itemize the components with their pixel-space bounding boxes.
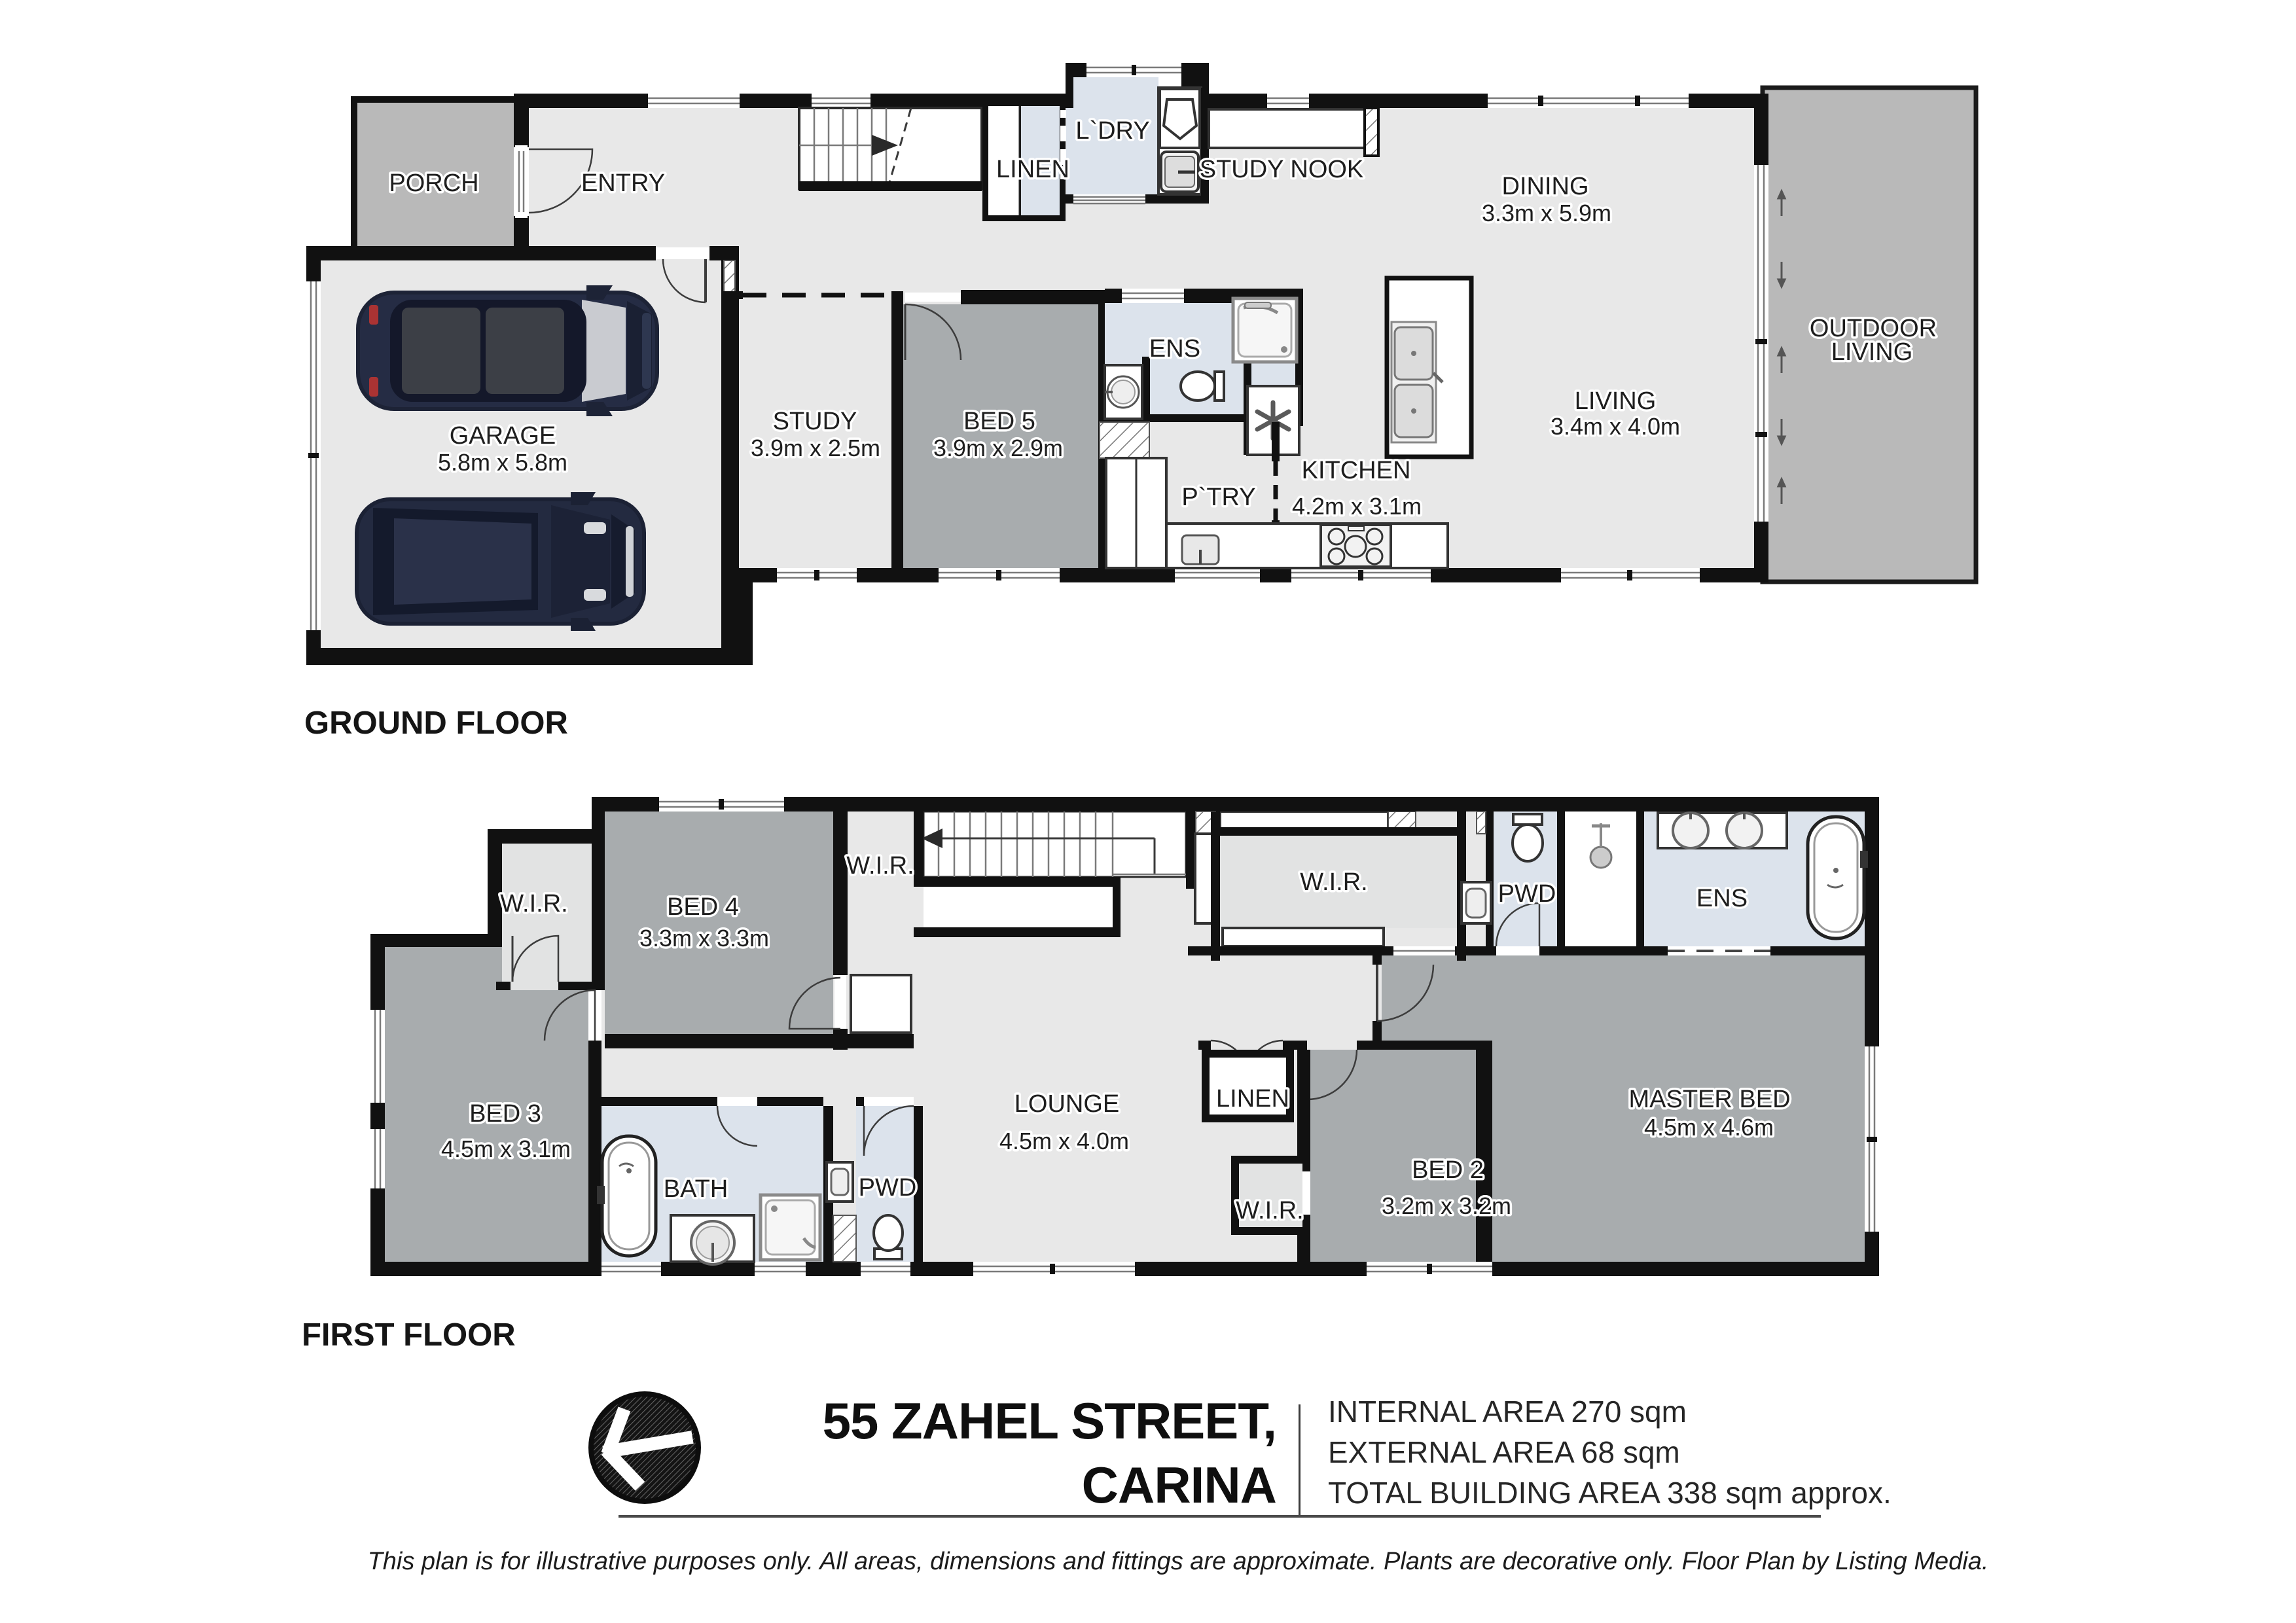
svg-text:MASTER BED: MASTER BED <box>1628 1086 1790 1113</box>
svg-text:EXTERNAL AREA 68 sqm: EXTERNAL AREA 68 sqm <box>1328 1435 1680 1469</box>
svg-text:BED 3: BED 3 <box>469 1100 541 1128</box>
svg-text:4.2m x 3.1m: 4.2m x 3.1m <box>1292 493 1422 520</box>
svg-text:LIVING: LIVING <box>1575 387 1657 415</box>
svg-text:W.I.R.: W.I.R. <box>500 890 567 918</box>
svg-text:FIRST FLOOR: FIRST FLOOR <box>302 1317 516 1353</box>
svg-text:PWD: PWD <box>859 1174 917 1202</box>
svg-text:4.5m x 4.6m: 4.5m x 4.6m <box>1644 1114 1774 1141</box>
svg-text:3.3m x 3.3m: 3.3m x 3.3m <box>639 925 769 952</box>
svg-text:STUDY NOOK: STUDY NOOK <box>1200 156 1364 183</box>
svg-text:INTERNAL AREA 270 sqm: INTERNAL AREA 270 sqm <box>1328 1395 1687 1429</box>
svg-text:BED 5: BED 5 <box>963 408 1035 435</box>
svg-text:W.I.R.: W.I.R. <box>1236 1197 1303 1224</box>
svg-text:LIVING: LIVING <box>1831 338 1913 366</box>
svg-text:3.9m x 2.5m: 3.9m x 2.5m <box>751 435 880 461</box>
svg-text:PORCH: PORCH <box>389 169 478 197</box>
svg-text:5.8m x 5.8m: 5.8m x 5.8m <box>438 449 567 476</box>
svg-text:W.I.R.: W.I.R. <box>846 852 914 880</box>
svg-text:ENS: ENS <box>1149 335 1200 363</box>
svg-text:LOUNGE: LOUNGE <box>1014 1090 1119 1118</box>
svg-text:LINEN: LINEN <box>1216 1085 1289 1113</box>
svg-text:3.9m x 2.9m: 3.9m x 2.9m <box>933 435 1063 461</box>
svg-text:L`DRY: L`DRY <box>1075 117 1149 145</box>
svg-text:3.2m x 3.2m: 3.2m x 3.2m <box>1382 1192 1511 1219</box>
svg-text:ENS: ENS <box>1696 885 1748 912</box>
svg-text:KITCHEN: KITCHEN <box>1302 457 1411 484</box>
svg-text:TOTAL BUILDING AREA 338 sqm ap: TOTAL BUILDING AREA 338 sqm approx. <box>1328 1476 1892 1510</box>
svg-text:3.3m x 5.9m: 3.3m x 5.9m <box>1482 200 1611 226</box>
svg-text:LINEN: LINEN <box>996 156 1069 183</box>
svg-text:GARAGE: GARAGE <box>450 422 556 450</box>
svg-text:PWD: PWD <box>1498 880 1556 908</box>
svg-text:STUDY: STUDY <box>773 408 857 435</box>
svg-text:DINING: DINING <box>1502 173 1589 200</box>
svg-text:55 ZAHEL STREET,: 55 ZAHEL STREET, <box>823 1392 1276 1450</box>
svg-text:4.5m x 4.0m: 4.5m x 4.0m <box>999 1128 1129 1154</box>
svg-text:BED 2: BED 2 <box>1412 1156 1484 1184</box>
svg-text:3.4m x 4.0m: 3.4m x 4.0m <box>1551 413 1680 440</box>
svg-text:BATH: BATH <box>664 1175 728 1203</box>
svg-text:GROUND FLOOR: GROUND FLOOR <box>304 705 568 741</box>
svg-text:ENTRY: ENTRY <box>581 169 665 197</box>
svg-text:BED 4: BED 4 <box>667 893 739 921</box>
svg-text:This plan is for illustrative: This plan is for illustrative purposes o… <box>368 1548 1989 1575</box>
svg-text:4.5m x 3.1m: 4.5m x 3.1m <box>441 1135 571 1162</box>
svg-text:P`TRY: P`TRY <box>1181 484 1255 511</box>
svg-text:W.I.R.: W.I.R. <box>1300 868 1367 896</box>
svg-text:CARINA: CARINA <box>1082 1456 1276 1514</box>
